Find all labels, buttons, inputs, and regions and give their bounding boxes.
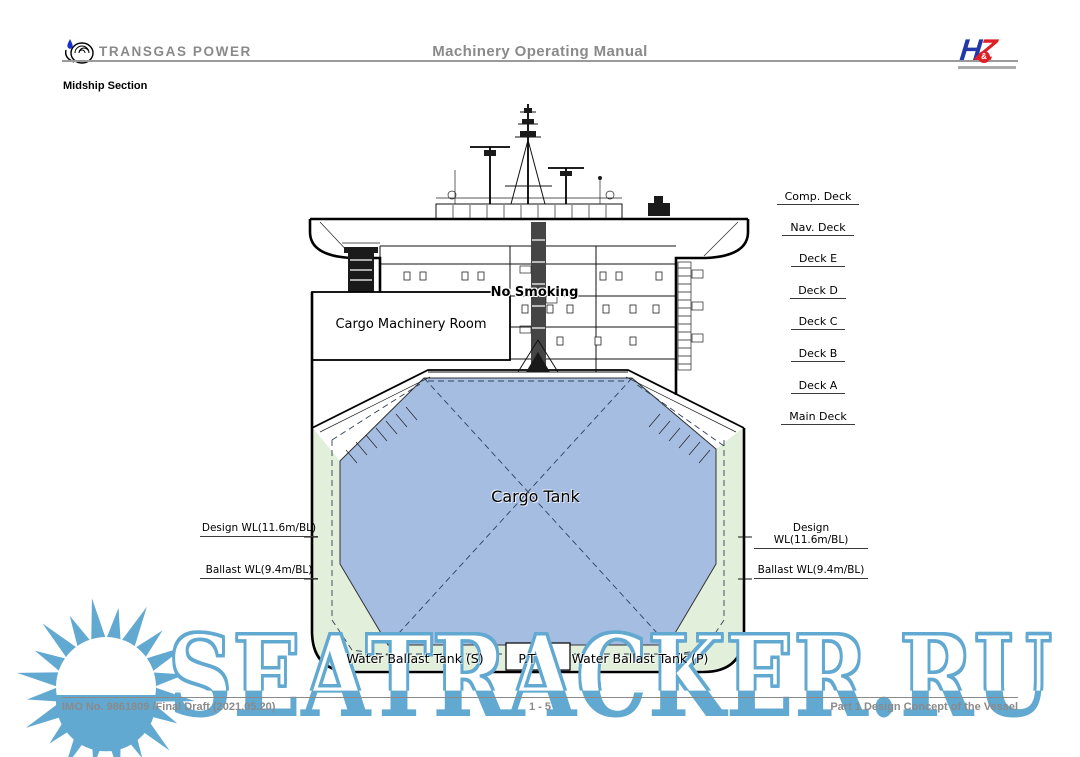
- water-ballast-tank-s-label: Water Ballast Tank (S): [344, 651, 486, 666]
- deck-label-comp: Comp. Deck: [760, 190, 876, 205]
- vent-funnel: [342, 243, 380, 294]
- pipe-trunk-label: P.T: [504, 651, 550, 666]
- footer-rule: [62, 697, 1018, 698]
- wheelhouse: [436, 204, 622, 219]
- ballast-wl-right: Ballast WL(9.4m/BL): [754, 564, 868, 579]
- design-wl-left: Design WL(11.6m/BL): [200, 522, 318, 537]
- deck-crane: [648, 196, 670, 216]
- deck-label-c: Deck C: [760, 315, 876, 330]
- deck-label-main: Main Deck: [760, 410, 876, 425]
- cargo-tank-shape: [340, 378, 716, 645]
- deck-label-d: Deck D: [760, 284, 876, 299]
- deck-label-a: Deck A: [760, 379, 876, 394]
- no-smoking-label: No Smoking: [477, 285, 592, 300]
- ballast-wl-left: Ballast WL(9.4m/BL): [200, 564, 318, 579]
- water-ballast-tank-p-label: Water Ballast Tank (P): [568, 651, 712, 666]
- cargo-tank-label: Cargo Tank: [458, 487, 613, 506]
- manual-page: TRANSGAS POWER Machinery Operating Manua…: [0, 0, 1080, 757]
- main-mast: [455, 104, 602, 204]
- cargo-machinery-room-label: Cargo Machinery Room: [318, 317, 504, 332]
- deck-label-nav: Nav. Deck: [760, 221, 876, 236]
- stair-tower: [678, 262, 703, 370]
- wheelhouse-windows: [436, 198, 622, 218]
- deck-label-b: Deck B: [760, 347, 876, 362]
- design-wl-right: Design WL(11.6m/BL): [754, 522, 868, 549]
- footer-part-title: Part 1 Design Concept of the Vessel: [62, 701, 1018, 713]
- deck-label-e: Deck E: [760, 252, 876, 267]
- wing-braces: [320, 222, 738, 256]
